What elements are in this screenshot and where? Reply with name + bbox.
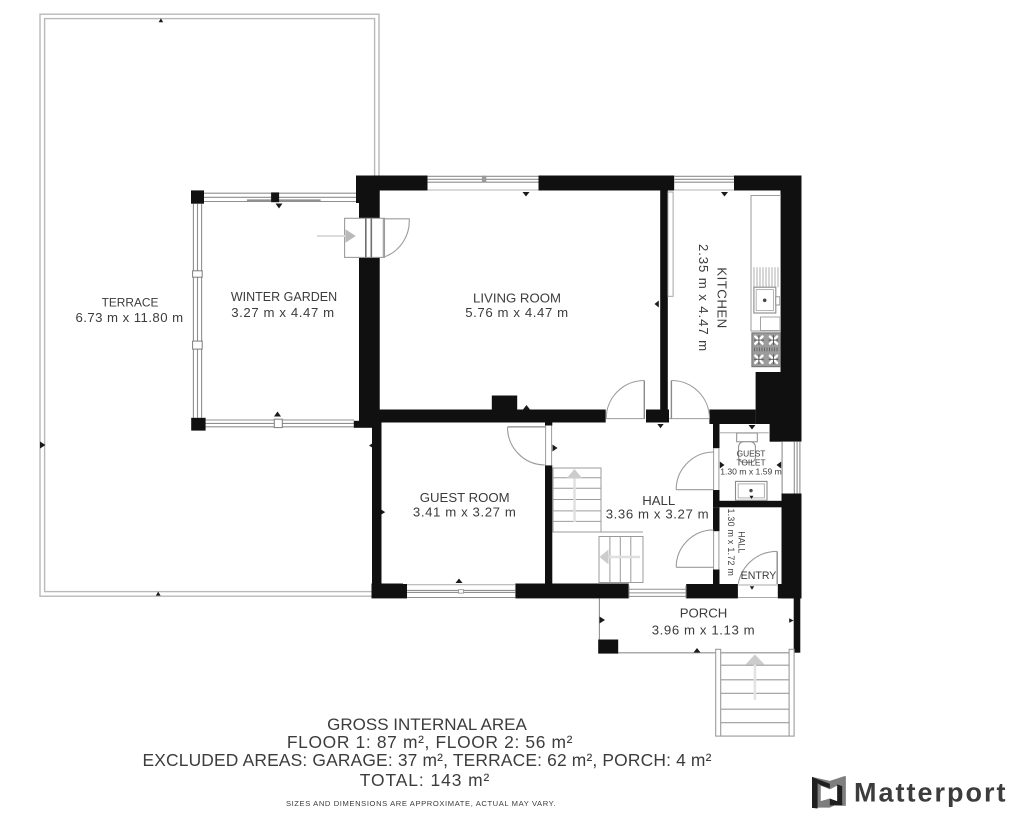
svg-text:Matterport: Matterport [854, 778, 1008, 808]
svg-text:3.36 m x 3.27 m: 3.36 m x 3.27 m [606, 507, 710, 522]
svg-text:3.41 m x 3.27 m: 3.41 m x 3.27 m [413, 505, 517, 520]
svg-text:6.73 m x 11.80 m: 6.73 m x 11.80 m [75, 310, 183, 325]
svg-text:ENTRY: ENTRY [741, 570, 777, 582]
svg-text:PORCH: PORCH [680, 606, 728, 621]
svg-text:1.30 m x 1.72 m: 1.30 m x 1.72 m [726, 509, 736, 577]
svg-text:5.76 m x 4.47 m: 5.76 m x 4.47 m [465, 305, 569, 320]
svg-text:3.27 m x 4.47 m: 3.27 m x 4.47 m [231, 305, 335, 320]
svg-text:LIVING ROOM: LIVING ROOM [473, 291, 561, 306]
svg-text:FLOOR 1: 87 m², FLOOR 2: 56 m²: FLOOR 1: 87 m², FLOOR 2: 56 m² [287, 732, 573, 752]
svg-text:3.96 m x 1.13 m: 3.96 m x 1.13 m [652, 623, 756, 638]
svg-text:WINTER GARDEN: WINTER GARDEN [231, 290, 337, 304]
svg-text:SIZES AND DIMENSIONS ARE APPRO: SIZES AND DIMENSIONS ARE APPROXIMATE, AC… [286, 799, 556, 808]
svg-text:2.35 m x 4.47 m: 2.35 m x 4.47 m [696, 244, 711, 352]
svg-text:KITCHEN: KITCHEN [715, 267, 730, 328]
svg-text:GUEST ROOM: GUEST ROOM [420, 490, 510, 505]
svg-text:TERRACE: TERRACE [102, 296, 159, 310]
svg-text:HALL: HALL [737, 531, 747, 553]
svg-text:TOTAL: 143 m²: TOTAL: 143 m² [360, 770, 491, 790]
svg-text:1.30 m x 1.59 m: 1.30 m x 1.59 m [720, 466, 782, 476]
svg-text:EXCLUDED AREAS: GARAGE: 37 m²,: EXCLUDED AREAS: GARAGE: 37 m², TERRACE: … [142, 750, 711, 770]
